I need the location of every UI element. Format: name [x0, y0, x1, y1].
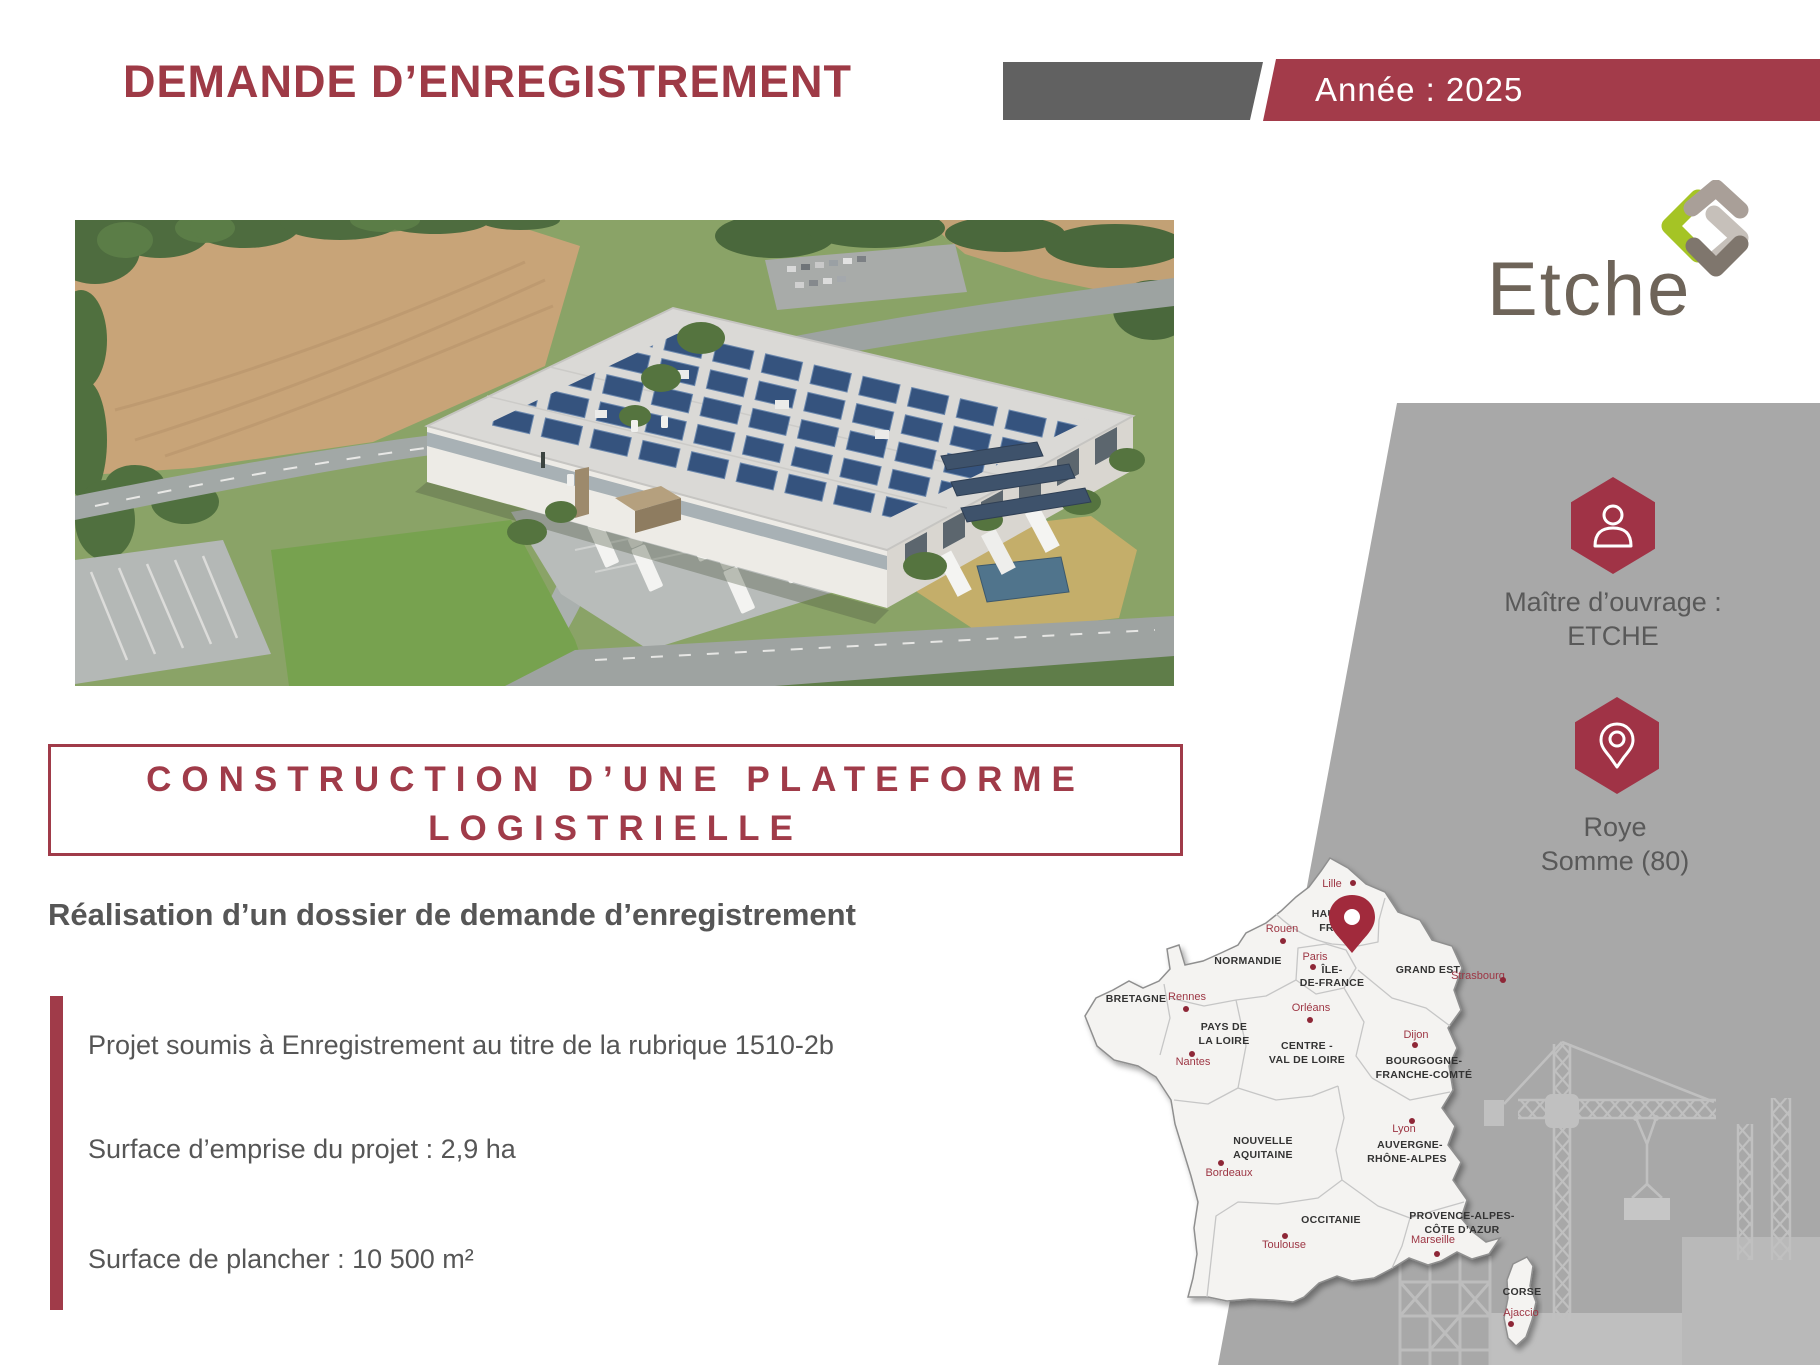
map-region-label: NORMANDIE: [1214, 955, 1281, 967]
bullet-item: Surface d’emprise du projet : 2,9 ha: [88, 1134, 516, 1165]
location-label-line2: Somme (80): [1425, 844, 1805, 878]
map-region-label: FRANCHE-COMTÉ: [1376, 1068, 1473, 1081]
accent-bar: [50, 996, 63, 1310]
map-city-label: Orléans: [1292, 1002, 1331, 1014]
project-title-line2: LOGISTRIELLE: [51, 804, 1180, 853]
map-city-label: Lyon: [1392, 1123, 1415, 1135]
page-title: DEMANDE D’ENREGISTREMENT: [123, 56, 852, 108]
map-region-label: NOUVELLE: [1233, 1135, 1293, 1147]
map-city-label: Rennes: [1168, 991, 1206, 1003]
map-region-label: BRETAGNE: [1106, 993, 1167, 1005]
map-region-label: RHÔNE-ALPES: [1367, 1152, 1447, 1165]
map-region-label: ÎLE-: [1320, 963, 1342, 976]
person-icon: [1591, 502, 1635, 550]
map-region-label: VAL DE LOIRE: [1269, 1054, 1345, 1066]
location-pin-icon: [1597, 721, 1637, 771]
map-city-label: Strasbourg: [1451, 970, 1505, 982]
header-gray-band: [1003, 62, 1263, 120]
map-region-label: LA LOIRE: [1198, 1035, 1249, 1047]
map-region-label: DE-FRANCE: [1300, 977, 1365, 989]
map-region-label: PROVENCE-ALPES-: [1409, 1210, 1515, 1222]
map-region-label: OCCITANIE: [1301, 1214, 1361, 1226]
map-city-label: Marseille: [1411, 1234, 1455, 1246]
aerial-photo: [75, 220, 1174, 686]
header-year-band: Année : 2025: [1263, 59, 1820, 121]
map-city-label: Lille: [1322, 878, 1342, 890]
year-label: Année : 2025: [1315, 71, 1523, 109]
map-city-label: Paris: [1302, 951, 1328, 963]
map-city-label: Rouen: [1266, 923, 1298, 935]
corsica: [1504, 1257, 1536, 1346]
bullet-item: Surface de plancher : 10 500 m²: [88, 1244, 474, 1275]
map-city-label: Ajaccio: [1503, 1307, 1538, 1319]
map-city-label: Nantes: [1176, 1056, 1211, 1068]
bullet-item: Projet soumis à Enregistrement au titre …: [88, 1030, 834, 1061]
project-title-line1: CONSTRUCTION D’UNE PLATEFORME: [51, 755, 1180, 804]
owner-label: Maître d’ouvrage : ETCHE: [1423, 585, 1803, 653]
etche-logo-wordmark: Etche: [1487, 246, 1691, 333]
map-region-label: CORSE: [1503, 1286, 1542, 1298]
map-city-label: Bordeaux: [1205, 1167, 1253, 1179]
france-map: HAUTS-DE- FRANCE NORMANDIE ÎLE- DE-FRANC…: [1080, 850, 1560, 1362]
owner-label-line1: Maître d’ouvrage :: [1423, 585, 1803, 619]
location-label-line1: Roye: [1425, 810, 1805, 844]
map-region-label: BOURGOGNE-: [1386, 1055, 1463, 1067]
map-region-label: AQUITAINE: [1233, 1149, 1293, 1161]
project-title-box: CONSTRUCTION D’UNE PLATEFORME LOGISTRIEL…: [48, 744, 1183, 856]
map-city-label: Toulouse: [1262, 1239, 1306, 1251]
slide: DEMANDE D’ENREGISTREMENT Année : 2025: [0, 0, 1820, 1365]
map-region-label: CENTRE -: [1281, 1040, 1333, 1052]
owner-label-line2: ETCHE: [1423, 619, 1803, 653]
location-label: Roye Somme (80): [1425, 810, 1805, 878]
map-city-label: Dijon: [1403, 1029, 1428, 1041]
map-region-label: PAYS DE: [1201, 1021, 1247, 1033]
subtitle: Réalisation d’un dossier de demande d’en…: [48, 897, 856, 933]
map-region-label: AUVERGNE-: [1377, 1139, 1443, 1151]
